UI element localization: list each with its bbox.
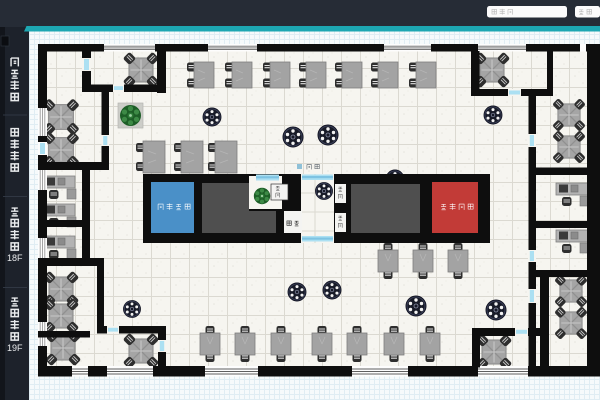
svg-text:19F: 19F	[7, 343, 23, 353]
svg-text:18F: 18F	[7, 253, 23, 263]
